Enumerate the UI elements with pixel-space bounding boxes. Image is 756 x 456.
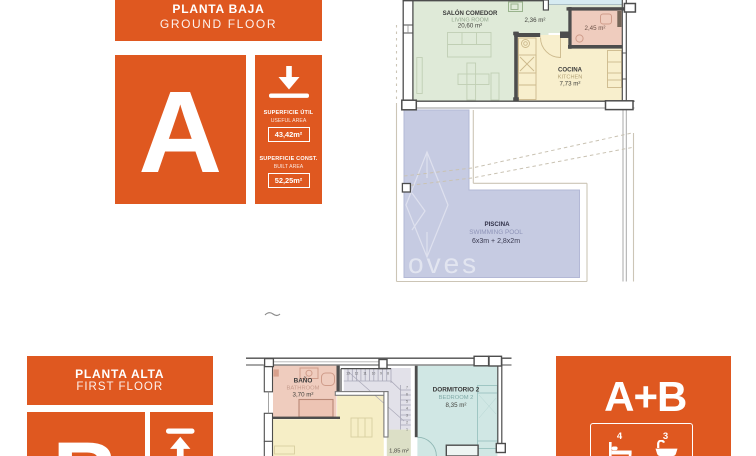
- svg-text:8: 8: [387, 372, 389, 376]
- svg-text:5: 5: [406, 400, 408, 404]
- svg-text:3,70 m²: 3,70 m²: [293, 392, 314, 399]
- svg-text:13: 13: [346, 372, 350, 376]
- svg-text:7: 7: [406, 386, 408, 390]
- svg-text:BAÑO: BAÑO: [294, 376, 313, 385]
- svg-text:3: 3: [406, 414, 408, 418]
- svg-text:1: 1: [406, 428, 408, 432]
- svg-text:2: 2: [406, 421, 408, 425]
- svg-text:DORMITORIO 2: DORMITORIO 2: [433, 387, 480, 394]
- svg-text:1,85 m²: 1,85 m²: [389, 449, 409, 455]
- svg-text:9: 9: [380, 372, 382, 376]
- svg-text:10: 10: [372, 372, 376, 376]
- svg-text:4: 4: [406, 407, 408, 411]
- svg-text:12: 12: [355, 372, 359, 376]
- svg-text:BEDROOM 2: BEDROOM 2: [439, 395, 474, 401]
- svg-text:6: 6: [406, 393, 408, 397]
- svg-text:8,35 m²: 8,35 m²: [446, 402, 467, 409]
- svg-text:11: 11: [363, 372, 367, 376]
